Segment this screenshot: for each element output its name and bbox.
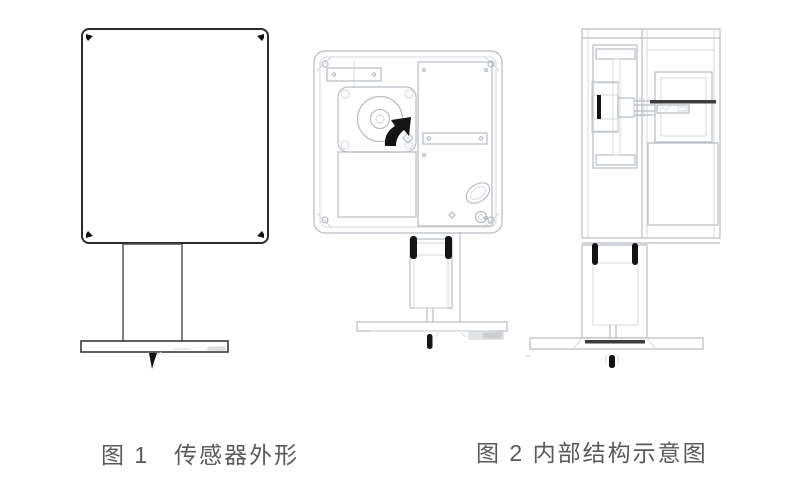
base-plate: [526, 338, 703, 357]
pedestal: [410, 232, 460, 322]
stamp-mark: [461, 331, 504, 340]
figure1-caption: 图 1 传感器外形: [101, 436, 299, 470]
base-flange: [81, 341, 228, 352]
connector-pin: [606, 355, 618, 368]
figure2-caption: 图 2 内部结构示意图: [476, 434, 708, 468]
mounting-bolts: [592, 243, 638, 265]
figure2-side-internal-drawing: [520, 20, 770, 380]
sensor-front-panel: [82, 29, 268, 243]
figure2-front-internal-drawing: [300, 40, 530, 360]
figure1-exterior-drawing: [60, 10, 290, 380]
connector-pin: [149, 352, 161, 369]
mounting-neck: [123, 244, 182, 341]
base-plate: [357, 322, 507, 331]
connector-pin: [427, 333, 439, 349]
document-canvas: 图 1 传感器外形 图 2 内部结构示意图: [0, 0, 800, 500]
